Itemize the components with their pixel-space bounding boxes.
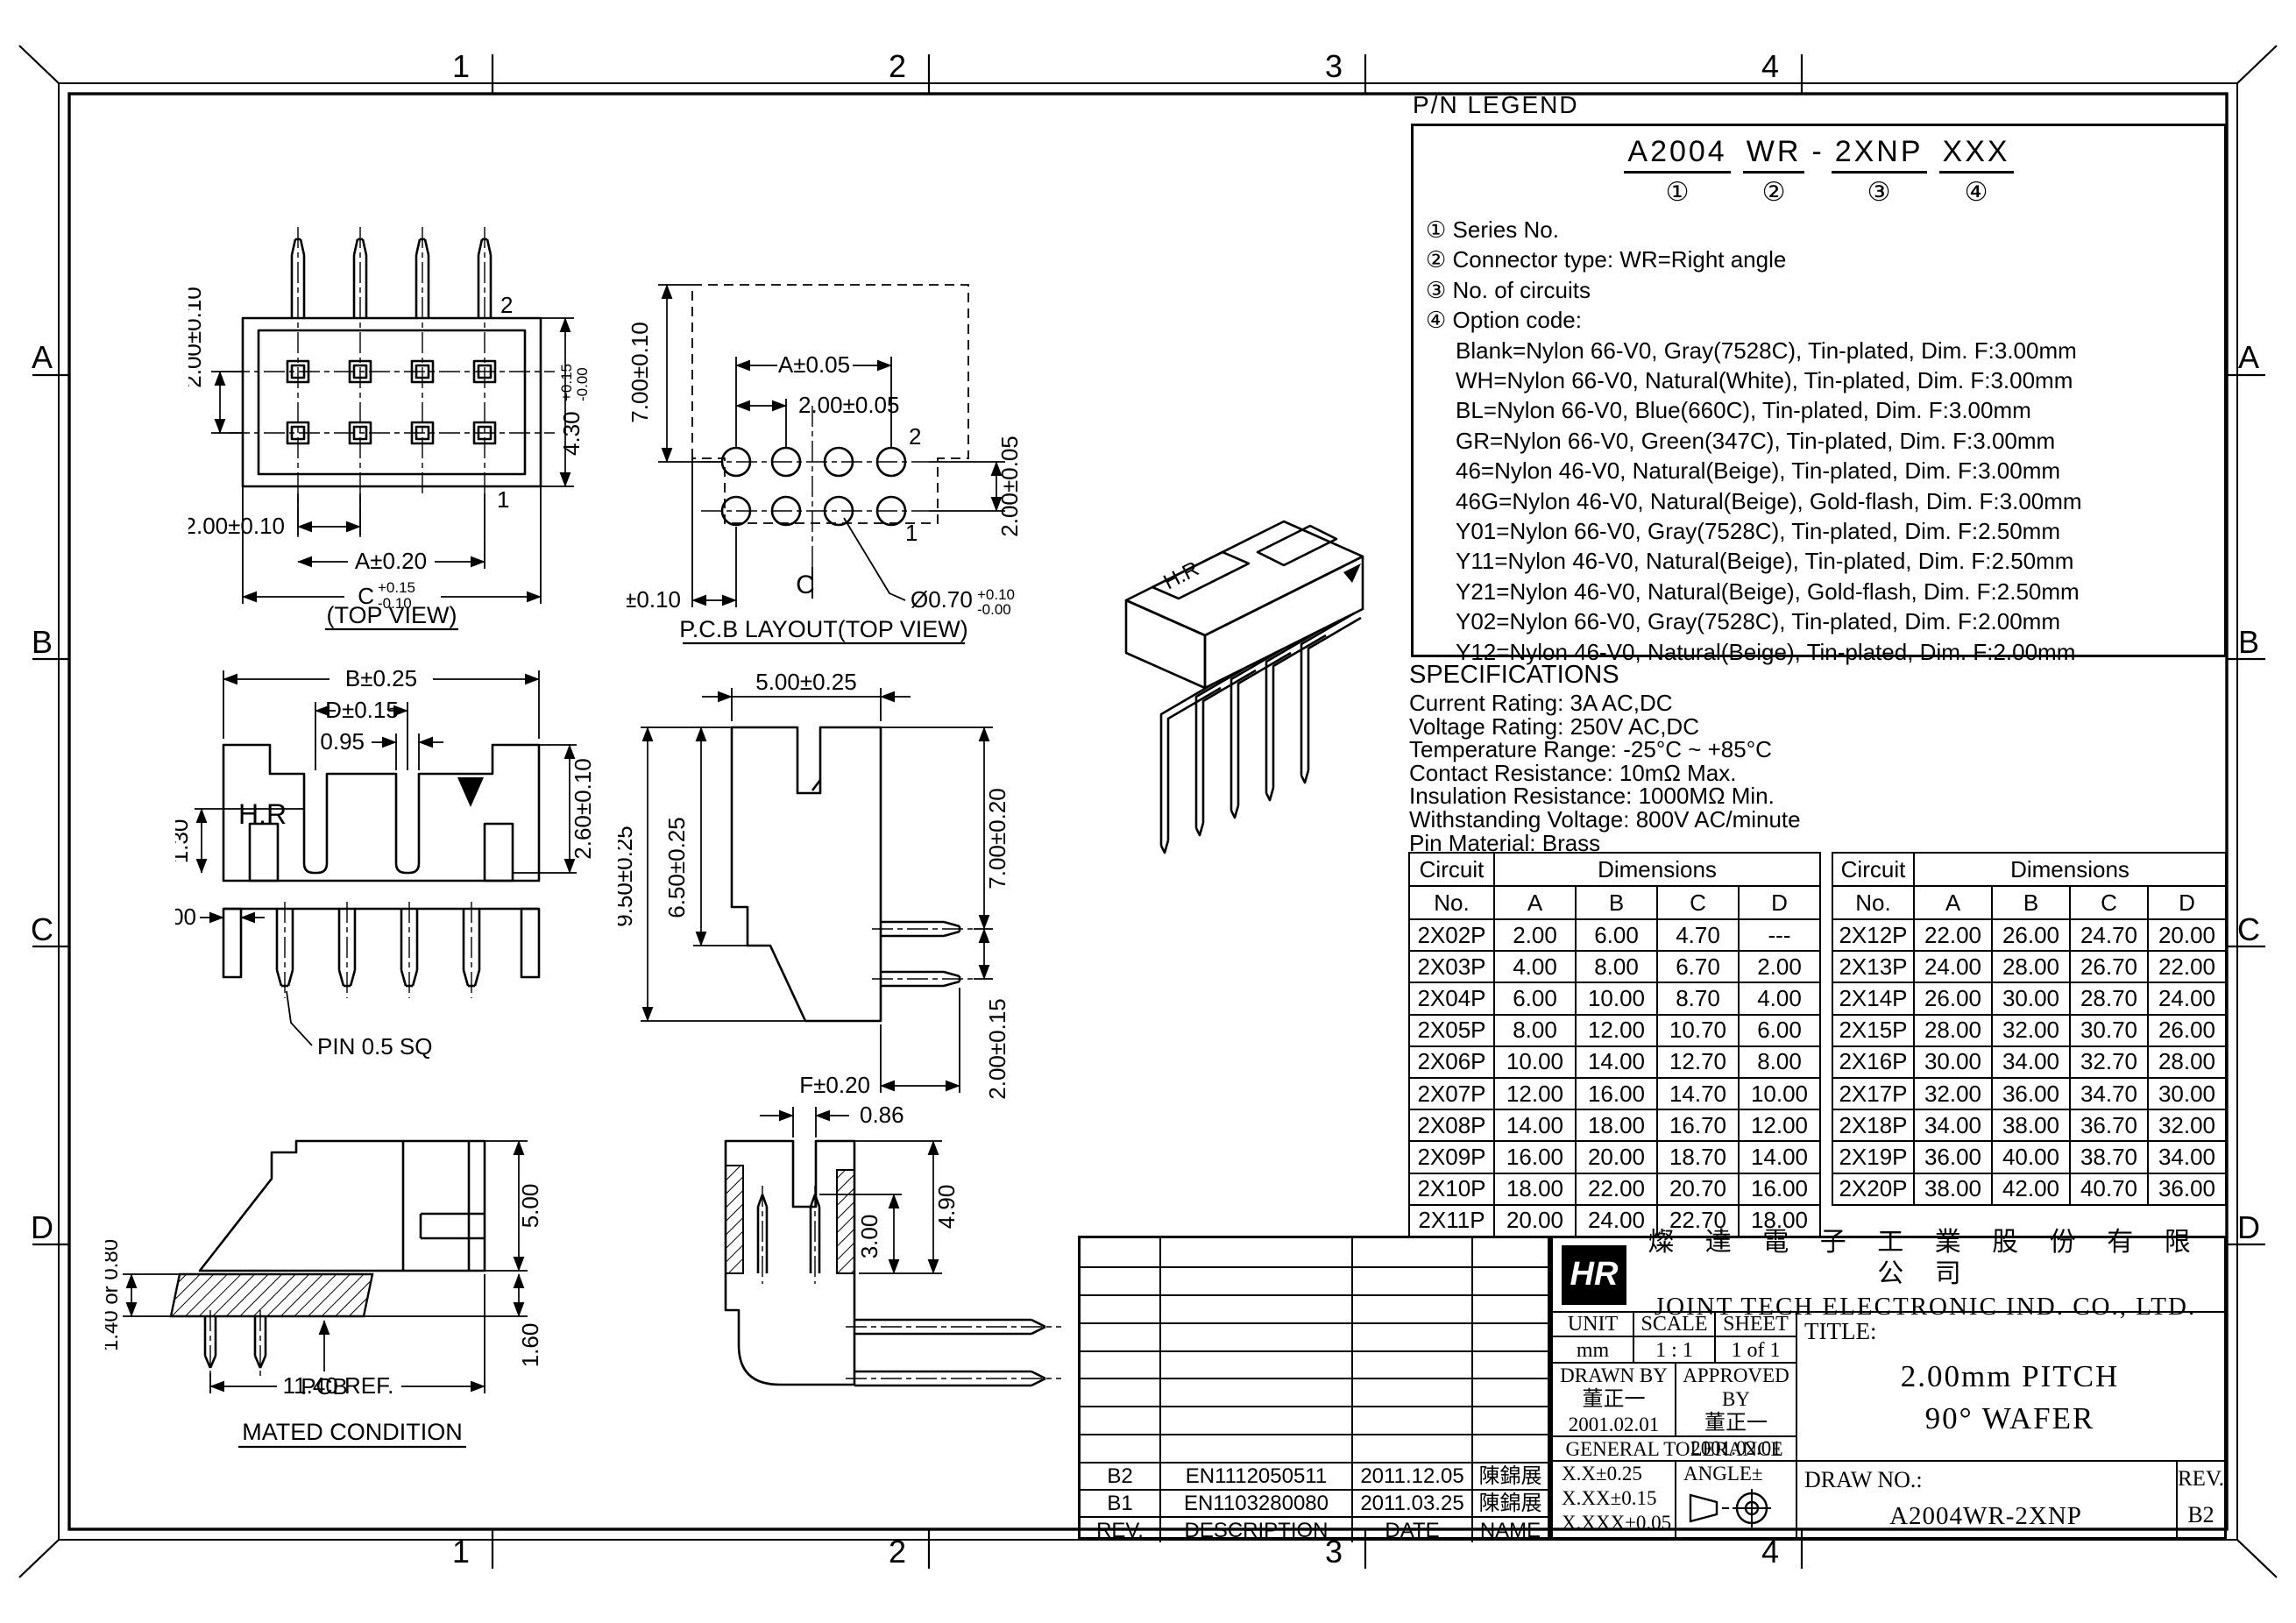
- dim-c-cell: 4.70: [1657, 919, 1739, 951]
- circuit-no-cell: 2X03P: [1409, 951, 1494, 982]
- dim-c-cell: 14.70: [1657, 1078, 1739, 1109]
- zone-letter-right: C: [2237, 911, 2260, 947]
- dim-label: 11.40 REF.: [283, 1372, 394, 1399]
- dim-b-cell: 8.00: [1576, 951, 1657, 982]
- circuit-no-cell: 2X16P: [1832, 1046, 1914, 1078]
- dim-label: 2.60±0.10: [570, 758, 596, 859]
- dim-c-cell: 6.70: [1657, 951, 1739, 982]
- legend-option: Y21=Nylon 46-V0, Natural(Beige), Gold-fl…: [1456, 577, 2224, 606]
- drawing-title-line2: 90° WAFER: [1796, 1401, 2224, 1436]
- drawn-by-label: DRAWN BY: [1553, 1364, 1675, 1387]
- legend-item-list: ① Series No.② Connector type: WR=Right a…: [1426, 215, 2224, 336]
- circuit-no-cell: 2X15P: [1832, 1015, 1914, 1046]
- view-caption: MATED CONDITION: [242, 1419, 463, 1445]
- circuit-no-cell: 2X07P: [1409, 1078, 1494, 1109]
- circuit-no-cell: 2X08P: [1409, 1109, 1494, 1141]
- zone-number-top: 3: [1325, 48, 1343, 84]
- table-row: 2X14P 26.00 30.00 28.70 24.00: [1832, 982, 2226, 1014]
- table-row: 2X17P 32.00 36.00 34.70 30.00: [1832, 1078, 2226, 1109]
- circuit-no-cell: 2X10P: [1409, 1173, 1494, 1205]
- legend-item: ① Series No.: [1426, 215, 2224, 245]
- rev-header: DATE: [1351, 1518, 1471, 1542]
- rev-description: EN1103280080: [1159, 1491, 1351, 1516]
- circuit-no-cell: 2X20P: [1832, 1173, 1914, 1205]
- specifications-title: SPECIFICATIONS: [1409, 661, 1988, 690]
- mating-slot: [421, 1214, 485, 1238]
- table-row: 2X05P 8.00 12.00 10.70 6.00: [1409, 1015, 1820, 1046]
- dim-label: 6.50±0.25: [663, 817, 690, 918]
- dim-c-cell: 30.70: [2070, 1015, 2148, 1046]
- revision-header-row: REV. DESCRIPTION DATE NAME: [1081, 1516, 1548, 1542]
- legend-item: ② Connector type: WR=Right angle: [1426, 245, 2224, 274]
- pin-number-label: 1: [905, 520, 918, 546]
- dim-c-cell: 28.70: [2070, 982, 2148, 1014]
- dim-b-cell: 30.00: [1992, 982, 2070, 1014]
- table-row: 2X20P 38.00 42.00 40.70 36.00: [1832, 1173, 2226, 1205]
- table-row: 2X19P 36.00 40.00 38.70 34.00: [1832, 1141, 2226, 1173]
- rev-id: B2: [1081, 1464, 1159, 1489]
- col-header-dimensions: Dimensions: [1494, 853, 1820, 886]
- pin-number-label: 2: [500, 292, 513, 318]
- dim-label: 2.00±0.10: [188, 287, 206, 387]
- dim-b-cell: 20.00: [1576, 1141, 1657, 1173]
- dim-a-cell: 32.00: [1914, 1078, 1992, 1109]
- unit-label: UNIT: [1553, 1313, 1633, 1337]
- title-area: TITLE: 2.00mm PITCH 90° WAFER: [1796, 1313, 2224, 1462]
- rev-date: 2011.12.05: [1351, 1464, 1471, 1489]
- specification-line: Withstanding Voltage: 800V AC/minute: [1409, 808, 1988, 832]
- dim-a-cell: 12.00: [1494, 1078, 1576, 1109]
- dim-label: 0.86: [860, 1102, 904, 1128]
- side-view-drawing: 5.00±0.25 9.50±0.25 6.50±0.25 7.00±0.20 …: [618, 653, 1028, 1144]
- dim-a-cell: 4.00: [1494, 951, 1576, 982]
- circuit-no-cell: 2X11P: [1409, 1205, 1494, 1237]
- legend-item: ④ Option code:: [1426, 305, 2224, 335]
- view-caption: P.C.B LAYOUT(TOP VIEW): [679, 616, 968, 642]
- dim-b-cell: 38.00: [1992, 1109, 2070, 1141]
- dim-c-cell: 40.70: [2070, 1173, 2148, 1205]
- general-tolerance-label: GENERAL TOLERANCE: [1553, 1437, 1796, 1462]
- dim-label: D±0.15: [325, 697, 399, 723]
- col-header-c: C: [1657, 886, 1739, 919]
- dim-b-cell: 28.00: [1992, 951, 2070, 982]
- dim-label: 1.00: [175, 904, 196, 930]
- legend-option: WH=Nylon 66-V0, Natural(White), Tin-plat…: [1456, 365, 2224, 395]
- dim-tolerance: +0.15: [558, 364, 575, 401]
- dim-b-cell: 6.00: [1576, 919, 1657, 951]
- col-header-a: A: [1494, 886, 1576, 919]
- section-pins: [758, 1186, 1061, 1386]
- specifications: SPECIFICATIONS Current Rating: 3A AC,DCV…: [1409, 661, 1988, 854]
- circuit-no-cell: 2X19P: [1832, 1141, 1914, 1173]
- dim-a-cell: 16.00: [1494, 1141, 1576, 1173]
- dim-a-cell: 34.00: [1914, 1109, 1992, 1141]
- dim-c-cell: 10.70: [1657, 1015, 1739, 1046]
- dim-label: 2.00±0.10: [627, 586, 681, 613]
- drawing-sheet: 1 2 3 4 1 2 3 4 A B C D A B C D P/N LEGE…: [0, 0, 2296, 1623]
- part-number-mark: ③: [1867, 177, 1891, 208]
- table-row: 2X15P 28.00 32.00 30.70 26.00: [1832, 1015, 2226, 1046]
- table-row: 2X18P 34.00 38.00 36.70 32.00: [1832, 1109, 2226, 1141]
- part-number-breakdown: A2004① WR② - 2XNP③ XXX④: [1414, 135, 2224, 208]
- dim-a-cell: 20.00: [1494, 1205, 1576, 1237]
- legend-title: P/N LEGEND: [1413, 91, 1579, 119]
- dim-d-cell: 28.00: [2148, 1046, 2226, 1078]
- draw-no-cell: DRAW NO.: A2004WR-2XNP: [1796, 1462, 2176, 1537]
- pcb-holes: [722, 448, 905, 525]
- specification-line: Contact Resistance: 10mΩ Max.: [1409, 762, 1988, 785]
- zone-letter-left: B: [32, 624, 53, 660]
- dim-label: 5.00±0.25: [755, 669, 856, 695]
- dim-d-cell: 22.00: [2148, 951, 2226, 982]
- drawn-by-name: 董正一: [1553, 1387, 1675, 1413]
- unit-value: mm: [1553, 1337, 1633, 1364]
- dim-b-cell: 12.00: [1576, 1015, 1657, 1046]
- drawn-date: 2001.02.01: [1553, 1413, 1675, 1436]
- dim-b-cell: 36.00: [1992, 1078, 2070, 1109]
- part-number-segment: XXX: [1939, 135, 2014, 174]
- angle-label: ANGLE±: [1683, 1462, 1796, 1486]
- front-view-pins: [277, 902, 479, 998]
- specification-lines: Current Rating: 3A AC,DCVoltage Rating: …: [1409, 691, 1988, 854]
- dim-c-cell: 32.70: [2070, 1046, 2148, 1078]
- dim-d-cell: 2.00: [1739, 951, 1820, 982]
- front-view-drawing: H.R B±0.25 D±0.15 0.95 2.60±0.10: [175, 644, 605, 1074]
- circuit-no-cell: 2X09P: [1409, 1141, 1494, 1173]
- approved-by-label: APPROVED BY: [1676, 1364, 1796, 1411]
- polarity-triangle-mark: [1343, 563, 1361, 583]
- mated-condition-drawing: 1.40 or 0.80 5.00 1.60 PCB 11.40 REF. MA…: [105, 1082, 600, 1490]
- dim-b-cell: 18.00: [1576, 1109, 1657, 1141]
- dim-label: A±0.05: [778, 351, 850, 378]
- dim-d-cell: 24.00: [2148, 982, 2226, 1014]
- zone-number-bottom: 1: [452, 1534, 470, 1570]
- zone-letter-left: A: [32, 339, 53, 375]
- legend-option: GR=Nylon 66-V0, Green(347C), Tin-plated,…: [1456, 426, 2224, 456]
- dim-label: 5.00: [517, 1184, 543, 1229]
- revision-row: B1 EN1103280080 2011.03.25 陳錦展: [1081, 1489, 1548, 1516]
- dim-label: 4.90: [933, 1185, 960, 1230]
- table-row: 2X10P 18.00 22.00 20.70 16.00: [1409, 1173, 1820, 1205]
- third-angle-projection-icon: [1683, 1486, 1789, 1530]
- table-row: 2X08P 14.00 18.00 16.70 12.00: [1409, 1109, 1820, 1141]
- col-header-d: D: [2148, 886, 2226, 919]
- sheet-value: 1 of 1: [1714, 1337, 1796, 1364]
- dim-label: 2.00±0.10: [188, 513, 285, 539]
- dim-c-cell: 24.70: [2070, 919, 2148, 951]
- dim-c-cell: 20.70: [1657, 1173, 1739, 1205]
- table-row: 2X09P 16.00 20.00 18.70 14.00: [1409, 1141, 1820, 1173]
- part-number-segment: 2XNP: [1832, 135, 1927, 174]
- dim-c-cell: 12.70: [1657, 1046, 1739, 1078]
- table-row: 2X12P 22.00 26.00 24.70 20.00: [1832, 919, 2226, 951]
- pcb-layout-drawing: C 7.00±0.10 A±0.05 2.00±0.05 2.00±0.05 2…: [627, 259, 1028, 651]
- scale-value: 1 : 1: [1633, 1337, 1714, 1364]
- col-header-a: A: [1914, 886, 1992, 919]
- dim-label: Ø0.70: [911, 586, 973, 613]
- dim-a-cell: 24.00: [1914, 951, 1992, 982]
- company-logo: HR: [1562, 1245, 1626, 1305]
- dim-a-cell: 2.00: [1494, 919, 1576, 951]
- dimension-table-right: Circuit Dimensions No. A B C D 2X12P 22.…: [1832, 852, 2227, 1206]
- dim-d-cell: 34.00: [2148, 1141, 2226, 1173]
- dim-d-cell: 26.00: [2148, 1015, 2226, 1046]
- dim-d-cell: 36.00: [2148, 1173, 2226, 1205]
- dim-d-cell: 12.00: [1739, 1109, 1820, 1141]
- dim-tolerance: +0.15: [378, 579, 415, 596]
- dim-b-cell: 32.00: [1992, 1015, 2070, 1046]
- dim-label: 3.00: [856, 1215, 882, 1259]
- top-view-drawing: 2.00±0.10 4.30 +0.15 -0.00 2.00±0.10 A±0…: [188, 215, 592, 634]
- dim-d-cell: 20.00: [2148, 919, 2226, 951]
- dim-d-cell: 6.00: [1739, 1015, 1820, 1046]
- drawn-by-cell: DRAWN BY 董正一 2001.02.01: [1553, 1364, 1675, 1437]
- dim-c-cell: 34.70: [2070, 1078, 2148, 1109]
- approved-by-cell: APPROVED BY 董正一 2001.02.01: [1675, 1364, 1796, 1437]
- tolerance-values: X.X±0.25 X.XX±0.15 X.XXX±0.05: [1553, 1462, 1675, 1537]
- dim-d-cell: 4.00: [1739, 982, 1820, 1014]
- legend-option: 46G=Nylon 46-V0, Natural(Beige), Gold-fl…: [1456, 486, 2224, 516]
- dim-c-cell: 26.70: [2070, 951, 2148, 982]
- part-number-separator: -: [1808, 135, 1827, 171]
- dim-a-cell: 36.00: [1914, 1141, 1992, 1173]
- circuit-no-cell: 2X02P: [1409, 919, 1494, 951]
- legend-option: Blank=Nylon 66-V0, Gray(7528C), Tin-plat…: [1456, 336, 2224, 365]
- col-header-circuit: Circuit: [1409, 853, 1494, 886]
- zone-letter-left: C: [31, 911, 53, 947]
- title-label: TITLE:: [1804, 1318, 2224, 1345]
- dim-a-cell: 28.00: [1914, 1015, 1992, 1046]
- dim-b-cell: 16.00: [1576, 1078, 1657, 1109]
- dim-label: 1.40 or 0.80: [105, 1239, 123, 1351]
- rev-cell: REV. B2: [2176, 1462, 2224, 1537]
- polarity-triangle-mark: [457, 777, 484, 807]
- dim-a-cell: 30.00: [1914, 1046, 1992, 1078]
- top-view-contact-pads: [229, 361, 555, 443]
- table-row: 2X06P 10.00 14.00 12.70 8.00: [1409, 1046, 1820, 1078]
- revision-table: B2 EN1112050511 2011.12.05 陳錦展 B1 EN1103…: [1078, 1236, 1550, 1540]
- circuit-no-cell: 2X13P: [1832, 951, 1914, 982]
- rev-header: NAME: [1471, 1518, 1548, 1542]
- legend-option: Y11=Nylon 46-V0, Natural(Beige), Tin-pla…: [1456, 546, 2224, 576]
- table-row: 2X07P 12.00 16.00 14.70 10.00: [1409, 1078, 1820, 1109]
- rev-name: 陳錦展: [1471, 1464, 1548, 1489]
- part-number-segment: A2004: [1624, 135, 1730, 174]
- legend-item: ③ No. of circuits: [1426, 275, 2224, 305]
- dim-d-cell: 30.00: [2148, 1078, 2226, 1109]
- dim-d-cell: 14.00: [1739, 1141, 1820, 1173]
- pcb-cross-section: [171, 1274, 372, 1316]
- brand-mark: H.R: [238, 798, 287, 830]
- dim-c-cell: 16.70: [1657, 1109, 1739, 1141]
- view-caption: (TOP VIEW): [326, 602, 457, 628]
- col-header-no: No.: [1409, 886, 1494, 919]
- rev-id: B1: [1081, 1491, 1159, 1516]
- dim-a-cell: 8.00: [1494, 1015, 1576, 1046]
- dim-d-cell: 10.00: [1739, 1078, 1820, 1109]
- dim-a-cell: 26.00: [1914, 982, 1992, 1014]
- table-row: 2X03P 4.00 8.00 6.70 2.00: [1409, 951, 1820, 982]
- dim-label: 1.60: [517, 1323, 543, 1368]
- specification-line: Voltage Rating: 250V AC,DC: [1409, 715, 1988, 739]
- part-number-mark: ①: [1666, 177, 1690, 208]
- iso-pins: [1161, 613, 1361, 853]
- col-header-b: B: [1576, 886, 1657, 919]
- dim-label: 9.50±0.25: [618, 826, 637, 926]
- scale-label: SCALE: [1633, 1313, 1714, 1337]
- dim-b-cell: 22.00: [1576, 1173, 1657, 1205]
- legend-option: BL=Nylon 66-V0, Blue(660C), Tin-plated, …: [1456, 395, 2224, 425]
- revision-row: B2 EN1112050511 2011.12.05 陳錦展: [1081, 1462, 1548, 1489]
- circuit-no-cell: 2X05P: [1409, 1015, 1494, 1046]
- specification-line: Insulation Resistance: 1000MΩ Min.: [1409, 784, 1988, 808]
- circuit-no-cell: 2X06P: [1409, 1046, 1494, 1078]
- col-header-b: B: [1992, 886, 2070, 919]
- dim-c-cell: 36.70: [2070, 1109, 2148, 1141]
- table-row: 2X13P 24.00 28.00 26.70 22.00: [1832, 951, 2226, 982]
- side-view-pins: [872, 922, 974, 986]
- rev-header: DESCRIPTION: [1159, 1518, 1351, 1542]
- mated-pins: [205, 1310, 266, 1380]
- col-header-circuit: Circuit: [1832, 853, 1914, 886]
- pin-number-label: 1: [497, 486, 509, 513]
- dim-a-cell: 14.00: [1494, 1109, 1576, 1141]
- col-header-d: D: [1739, 886, 1820, 919]
- angle-tolerance-cell: ANGLE±: [1675, 1462, 1796, 1537]
- dim-b-cell: 10.00: [1576, 982, 1657, 1014]
- part-number-mark: ④: [1965, 177, 1988, 208]
- dim-c-cell: 18.70: [1657, 1141, 1739, 1173]
- dim-a-cell: 22.00: [1914, 919, 1992, 951]
- dim-c-cell: 38.70: [2070, 1141, 2148, 1173]
- circuit-no-cell: 2X18P: [1832, 1109, 1914, 1141]
- table-row: 2X16P 30.00 34.00 32.70 28.00: [1832, 1046, 2226, 1078]
- dimension-table-left: Circuit Dimensions No. A B C D 2X02P 2.0…: [1408, 852, 1821, 1237]
- dim-label-group: 4.30 +0.15 -0.00: [558, 364, 591, 456]
- zone-number-bottom: 2: [889, 1534, 906, 1570]
- title-block: HR 燦 達 電 子 工 業 股 份 有 限 公 司 JOINT TECH EL…: [1550, 1236, 2227, 1540]
- dim-label: 0.95: [320, 728, 365, 755]
- part-number-segment: WR: [1743, 135, 1805, 174]
- table-row: 2X04P 6.00 10.00 8.70 4.00: [1409, 982, 1820, 1014]
- zone-number-top: 1: [452, 48, 470, 84]
- company-banner: HR 燦 達 電 子 工 業 股 份 有 限 公 司 JOINT TECH EL…: [1553, 1238, 2224, 1313]
- rev-label: REV.: [2178, 1467, 2224, 1492]
- dim-d-cell: 32.00: [2148, 1109, 2226, 1141]
- dim-d-cell: ---: [1739, 919, 1820, 951]
- dim-b-cell: 14.00: [1576, 1046, 1657, 1078]
- part-number-mark: ②: [1762, 177, 1786, 208]
- dim-d-cell: 8.00: [1739, 1046, 1820, 1078]
- rev-value: B2: [2178, 1502, 2224, 1528]
- legend-option: Y01=Nylon 66-V0, Gray(7528C), Tin-plated…: [1456, 516, 2224, 546]
- top-view-pins: [292, 227, 491, 565]
- zone-letter-left: D: [31, 1209, 53, 1245]
- circuit-no-cell: 2X04P: [1409, 982, 1494, 1014]
- dim-a-cell: 18.00: [1494, 1173, 1576, 1205]
- dim-a-cell: 6.00: [1494, 982, 1576, 1014]
- dim-d-cell: 16.00: [1739, 1173, 1820, 1205]
- dim-a-cell: 10.00: [1494, 1046, 1576, 1078]
- col-header-no: No.: [1832, 886, 1914, 919]
- rev-date: 2011.03.25: [1351, 1491, 1471, 1516]
- tolerance-line: X.X±0.25: [1562, 1462, 1675, 1486]
- dim-b-cell: 34.00: [1992, 1046, 2070, 1078]
- specification-line: Temperature Range: -25°C ~ +85°C: [1409, 738, 1988, 762]
- legend-option-list: Blank=Nylon 66-V0, Gray(7528C), Tin-plat…: [1456, 336, 2224, 667]
- circuit-no-cell: 2X17P: [1832, 1078, 1914, 1109]
- rev-header: REV.: [1081, 1518, 1159, 1542]
- dim-b-cell: 42.00: [1992, 1173, 2070, 1205]
- zone-letter-right: B: [2238, 624, 2259, 660]
- specification-line: Current Rating: 3A AC,DC: [1409, 691, 1988, 715]
- zone-letter-right: D: [2237, 1209, 2260, 1245]
- zone-number-top: 2: [889, 48, 906, 84]
- pin-number-label: 2: [909, 423, 921, 450]
- dim-b-cell: 26.00: [1992, 919, 2070, 951]
- sheet-label: SHEET: [1714, 1313, 1796, 1337]
- legend-option: Y02=Nylon 66-V0, Gray(7528C), Tin-plated…: [1456, 606, 2224, 636]
- tolerance-line: X.XXX±0.05: [1562, 1511, 1675, 1535]
- drawing-title-line1: 2.00mm PITCH: [1796, 1359, 2224, 1394]
- dim-label: 1.30: [175, 819, 193, 864]
- col-header-c: C: [2070, 886, 2148, 919]
- col-header-dimensions: Dimensions: [1914, 853, 2226, 886]
- dim-label: B±0.25: [345, 665, 417, 691]
- draw-no-label: DRAW NO.:: [1804, 1467, 2176, 1493]
- zone-letter-right: A: [2238, 339, 2259, 375]
- circuit-no-cell: 2X12P: [1832, 919, 1914, 951]
- company-name-cn: 燦 達 電 子 工 業 股 份 有 限 公 司: [1626, 1227, 2224, 1290]
- legend-option: 46=Nylon 46-V0, Natural(Beige), Tin-plat…: [1456, 456, 2224, 485]
- circuit-no-cell: 2X14P: [1832, 982, 1914, 1014]
- dim-a-cell: 38.00: [1914, 1173, 1992, 1205]
- dim-label: 2.00±0.05: [798, 392, 899, 418]
- rev-name: 陳錦展: [1471, 1491, 1548, 1516]
- tolerance-line: X.XX±0.15: [1562, 1486, 1675, 1511]
- dim-b-cell: 40.00: [1992, 1141, 2070, 1173]
- section-view-drawing: 0.86 3.00 4.90: [714, 1082, 1082, 1468]
- dim-label: A±0.20: [355, 548, 427, 574]
- table-row: 2X02P 2.00 6.00 4.70 ---: [1409, 919, 1820, 951]
- zone-number-top: 4: [1761, 48, 1779, 84]
- dim-c-cell: 8.70: [1657, 982, 1739, 1014]
- pn-legend-box: A2004① WR② - 2XNP③ XXX④ ① Series No.② Co…: [1411, 124, 2227, 657]
- approved-by-name: 董正一: [1676, 1411, 1796, 1436]
- dim-label: 4.30: [558, 411, 585, 456]
- isometric-view-drawing: H.R: [995, 469, 1407, 863]
- pin-size-note: PIN 0.5 SQ: [317, 1033, 433, 1060]
- dim-tolerance: -0.00: [574, 367, 591, 401]
- draw-no-value: A2004WR-2XNP: [1796, 1502, 2176, 1531]
- dim-label: 7.00±0.10: [627, 322, 653, 422]
- rev-description: EN1112050511: [1159, 1464, 1351, 1489]
